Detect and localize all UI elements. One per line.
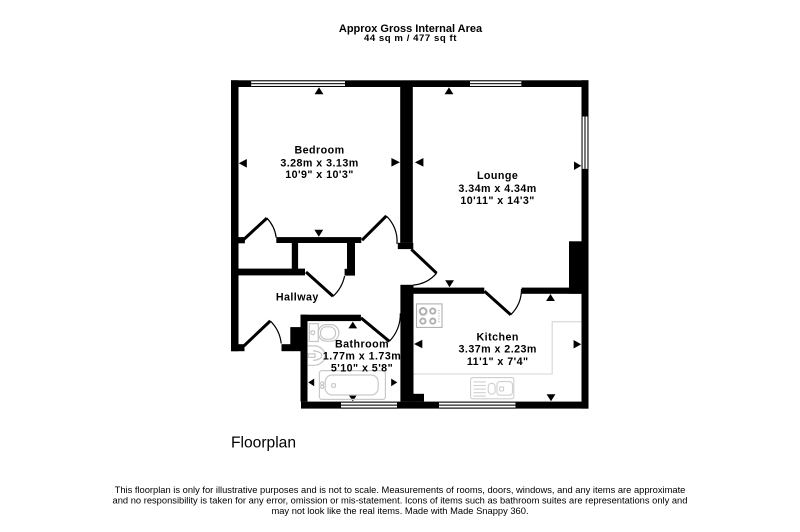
svg-text:44 sq m / 477 sq ft: 44 sq m / 477 sq ft: [364, 33, 457, 44]
svg-text:10'11" x 14'3": 10'11" x 14'3": [460, 195, 534, 207]
svg-text:Hallway: Hallway: [276, 292, 319, 304]
svg-text:3.34m x 4.34m: 3.34m x 4.34m: [458, 183, 536, 195]
svg-text:1.77m x 1.73m: 1.77m x 1.73m: [323, 350, 401, 362]
svg-text:3.37m x 2.23m: 3.37m x 2.23m: [459, 344, 537, 356]
svg-text:may not look like the real ite: may not look like the real items. Made w…: [271, 506, 528, 516]
svg-text:10'9" x 10'3": 10'9" x 10'3": [285, 169, 354, 181]
svg-text:Kitchen: Kitchen: [477, 331, 519, 343]
svg-text:Lounge: Lounge: [477, 170, 518, 182]
svg-text:Bedroom: Bedroom: [294, 145, 344, 157]
svg-text:and no responsibility is taken: and no responsibility is taken for any e…: [113, 496, 688, 506]
svg-text:This floorplan is only for ill: This floorplan is only for illustrative …: [115, 485, 686, 495]
svg-text:Bathroom: Bathroom: [335, 338, 389, 350]
svg-text:5'10" x 5'8": 5'10" x 5'8": [331, 362, 393, 374]
svg-text:Floorplan: Floorplan: [231, 435, 296, 452]
svg-text:11'1" x 7'4": 11'1" x 7'4": [467, 356, 529, 368]
svg-text:3.28m x 3.13m: 3.28m x 3.13m: [280, 158, 358, 170]
